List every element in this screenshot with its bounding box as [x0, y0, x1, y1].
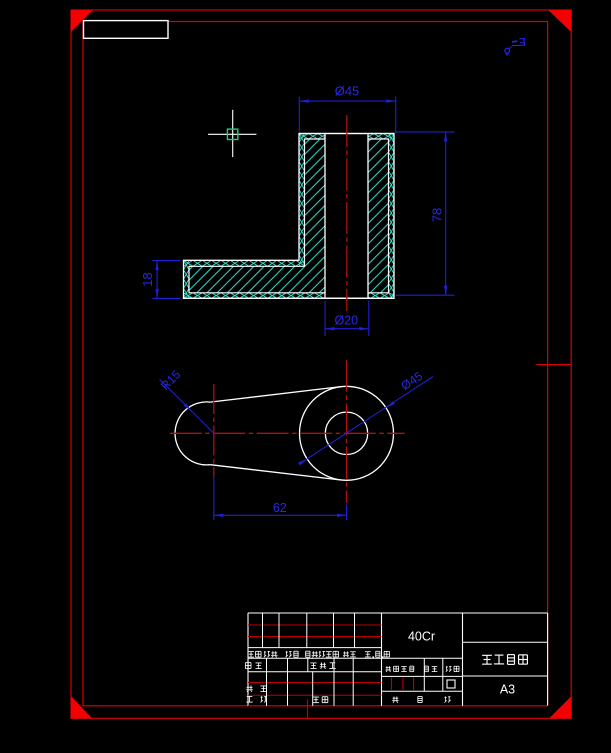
svg-text:A3: A3 — [500, 683, 515, 697]
svg-text:Ø20: Ø20 — [334, 313, 358, 327]
svg-text:40Cr: 40Cr — [408, 630, 435, 644]
svg-text:Ø45: Ø45 — [335, 83, 360, 98]
svg-text:78: 78 — [429, 208, 444, 222]
svg-text:18: 18 — [140, 272, 155, 286]
svg-text:62: 62 — [273, 501, 287, 515]
